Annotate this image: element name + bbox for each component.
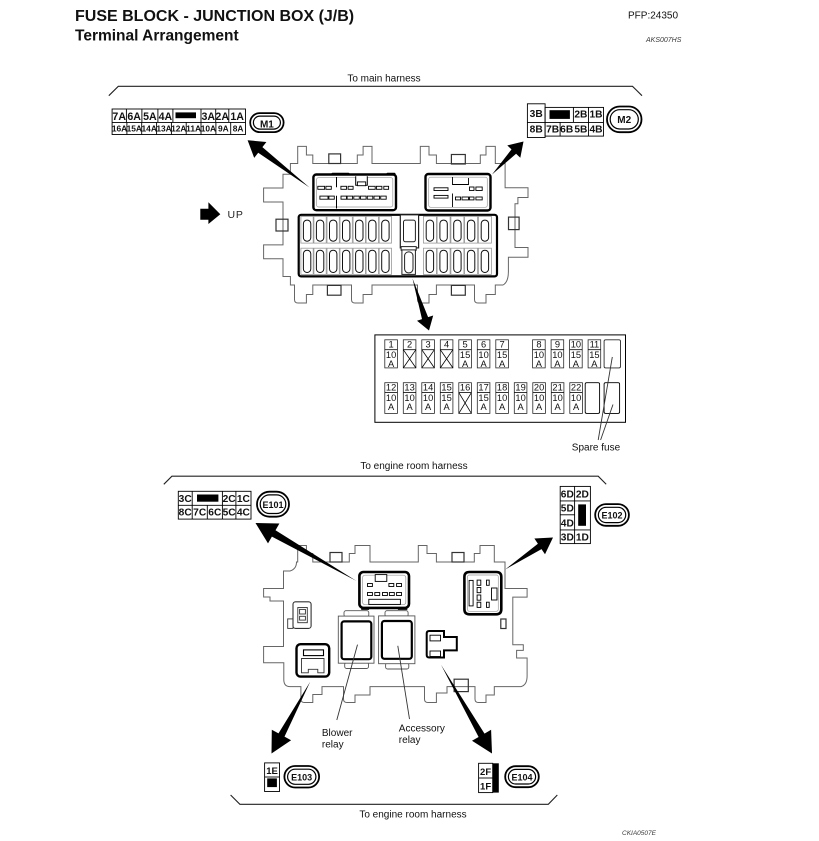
svg-text:PFP:24350: PFP:24350 [628, 11, 678, 22]
svg-text:Blower: Blower [322, 728, 353, 739]
svg-text:M1: M1 [260, 119, 274, 130]
svg-text:6: 6 [481, 340, 486, 350]
svg-text:A: A [406, 402, 413, 412]
svg-text:11A: 11A [186, 123, 201, 133]
svg-text:Terminal Arrangement: Terminal Arrangement [75, 28, 239, 45]
svg-text:8B: 8B [530, 125, 543, 136]
svg-text:A: A [425, 402, 432, 412]
svg-text:2C: 2C [223, 494, 237, 505]
svg-text:4C: 4C [237, 508, 251, 519]
svg-text:11: 11 [590, 340, 600, 350]
svg-text:16A: 16A [112, 123, 127, 133]
svg-text:A: A [591, 359, 598, 369]
svg-text:A: A [388, 359, 395, 369]
svg-text:17: 17 [478, 383, 488, 393]
svg-text:A: A [536, 402, 543, 412]
svg-text:AKS007HS: AKS007HS [645, 37, 682, 44]
svg-text:12A: 12A [171, 123, 186, 133]
svg-text:CKIA0507E: CKIA0507E [622, 830, 657, 837]
svg-text:12: 12 [386, 383, 396, 393]
svg-text:8A: 8A [233, 123, 244, 133]
svg-text:A: A [573, 402, 580, 412]
svg-text:6B: 6B [560, 125, 573, 136]
svg-text:E101: E101 [262, 500, 283, 510]
svg-text:2F: 2F [480, 767, 491, 778]
svg-text:5C: 5C [223, 508, 237, 519]
svg-text:6C: 6C [208, 508, 222, 519]
svg-text:7C: 7C [193, 508, 207, 519]
svg-text:UP: UP [228, 209, 244, 221]
svg-text:A: A [499, 359, 506, 369]
svg-text:10: 10 [571, 340, 581, 350]
svg-text:relay: relay [322, 739, 344, 750]
svg-text:1B: 1B [589, 110, 602, 121]
svg-text:4: 4 [444, 340, 449, 350]
svg-text:5: 5 [463, 340, 468, 350]
svg-text:9: 9 [555, 340, 560, 350]
svg-text:21: 21 [552, 383, 562, 393]
svg-text:1E: 1E [266, 766, 278, 777]
svg-text:6D: 6D [561, 489, 574, 500]
svg-text:A: A [443, 402, 450, 412]
svg-text:10A: 10A [201, 123, 216, 133]
svg-text:3A: 3A [202, 111, 216, 123]
svg-text:8: 8 [536, 340, 541, 350]
svg-text:2A: 2A [215, 111, 229, 123]
svg-text:1: 1 [389, 340, 394, 350]
svg-text:9A: 9A [218, 123, 229, 133]
svg-text:2: 2 [407, 340, 412, 350]
svg-text:22: 22 [571, 383, 581, 393]
svg-text:15: 15 [441, 383, 451, 393]
svg-text:1D: 1D [576, 532, 589, 543]
svg-text:A: A [499, 402, 506, 412]
svg-text:Spare fuse: Spare fuse [572, 443, 621, 454]
svg-text:To main harness: To main harness [347, 74, 420, 85]
svg-text:14: 14 [423, 383, 433, 393]
svg-text:20: 20 [534, 383, 544, 393]
svg-text:E103: E103 [291, 772, 312, 782]
svg-text:3: 3 [426, 340, 431, 350]
svg-text:4D: 4D [561, 518, 574, 529]
svg-text:7A: 7A [112, 111, 126, 123]
svg-text:A: A [480, 402, 487, 412]
svg-text:3B: 3B [530, 109, 543, 120]
svg-text:A: A [573, 359, 580, 369]
svg-text:19: 19 [515, 383, 525, 393]
svg-text:1C: 1C [237, 494, 251, 505]
svg-text:16: 16 [460, 383, 470, 393]
svg-text:To engine room harness: To engine room harness [359, 810, 466, 821]
svg-text:13: 13 [404, 383, 414, 393]
svg-text:7B: 7B [546, 125, 559, 136]
svg-text:A: A [517, 402, 524, 412]
svg-text:A: A [554, 359, 561, 369]
svg-text:1F: 1F [480, 782, 491, 793]
svg-text:1A: 1A [230, 111, 244, 123]
svg-text:13A: 13A [156, 123, 171, 133]
svg-text:5A: 5A [143, 111, 157, 123]
svg-text:A: A [480, 359, 487, 369]
svg-text:4A: 4A [159, 111, 173, 123]
svg-text:5B: 5B [574, 125, 587, 136]
svg-text:A: A [536, 359, 543, 369]
svg-text:14A: 14A [142, 123, 157, 133]
svg-text:15A: 15A [127, 123, 142, 133]
svg-text:FUSE BLOCK - JUNCTION BOX (J/B: FUSE BLOCK - JUNCTION BOX (J/B) [75, 8, 354, 25]
svg-text:Accessory: Accessory [399, 724, 445, 735]
svg-text:To engine room harness: To engine room harness [360, 461, 467, 472]
svg-text:6A: 6A [127, 111, 141, 123]
svg-text:M2: M2 [617, 115, 631, 126]
svg-text:5D: 5D [561, 503, 574, 514]
svg-text:8C: 8C [179, 508, 193, 519]
svg-text:18: 18 [497, 383, 507, 393]
svg-text:A: A [554, 402, 561, 412]
svg-text:2D: 2D [576, 489, 589, 500]
svg-text:A: A [462, 359, 469, 369]
svg-text:2B: 2B [574, 110, 587, 121]
svg-text:3C: 3C [179, 494, 193, 505]
svg-text:E104: E104 [511, 772, 532, 782]
svg-text:A: A [388, 402, 395, 412]
svg-text:relay: relay [399, 735, 421, 746]
svg-text:7: 7 [500, 340, 505, 350]
svg-text:4B: 4B [589, 125, 602, 136]
svg-text:3D: 3D [561, 532, 574, 543]
svg-text:E102: E102 [601, 511, 622, 521]
